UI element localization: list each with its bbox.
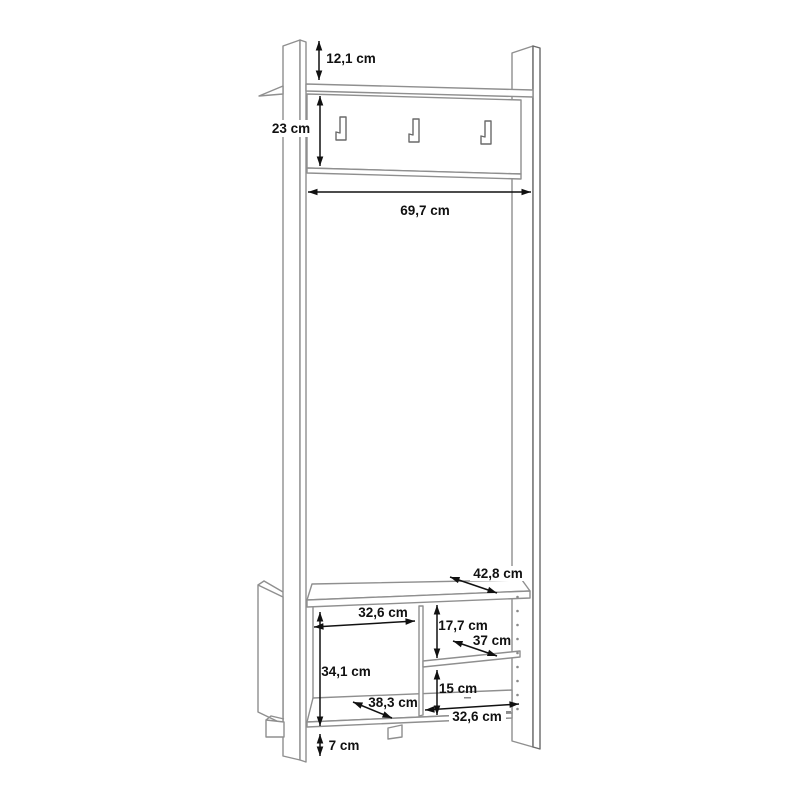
wardrobe-frame — [258, 40, 540, 762]
dim-label-foot-height: 7 cm — [329, 738, 360, 753]
dim-label-panel-width: 69,7 cm — [400, 203, 450, 218]
dim-label-top-overhang: 12,1 cm — [326, 51, 376, 66]
top-shelf-left-end — [259, 86, 283, 96]
arrowhead — [317, 734, 324, 744]
arrowhead — [314, 623, 324, 630]
dim-label-right-upper-height: 17,7 cm — [438, 618, 488, 633]
arrowhead — [317, 747, 324, 757]
bench-middle-foot — [388, 725, 402, 739]
dim-label-right-lower-height: 15 cm — [439, 681, 477, 696]
dim-label-left-compartment-depth: 38,3 cm — [368, 695, 418, 710]
arrowhead — [434, 670, 441, 680]
dim-label-panel-height: 23 cm — [272, 121, 310, 136]
arrowhead — [434, 649, 441, 659]
dim-label-bench-depth: 42,8 cm — [473, 566, 523, 581]
arrowhead — [316, 41, 323, 51]
arrowhead — [434, 605, 441, 615]
arrowhead — [317, 612, 324, 622]
bench-left-foot — [266, 720, 284, 737]
dim-label-left-compartment-width: 32,6 cm — [358, 605, 408, 620]
dim-label-left-compartment-height: 34,1 cm — [321, 664, 371, 679]
arrowhead — [453, 641, 463, 647]
left-post-side — [300, 40, 306, 762]
arrowhead — [308, 189, 318, 196]
left-post-front — [283, 40, 300, 760]
dim-label-right-compartment-width: 32,6 cm — [452, 709, 502, 724]
dimension-line-left-compartment-width — [314, 621, 415, 627]
fitting-mark — [464, 697, 471, 699]
right-post-side — [533, 46, 540, 749]
arrowhead — [316, 71, 323, 81]
dim-label-shelf-depth: 37 cm — [473, 633, 511, 648]
furniture-dimension-drawing: 12,1 cm 23 cm 69,7 cm 42,8 cm 32,6 cm 17… — [0, 0, 800, 800]
bench-left-door — [258, 585, 283, 724]
